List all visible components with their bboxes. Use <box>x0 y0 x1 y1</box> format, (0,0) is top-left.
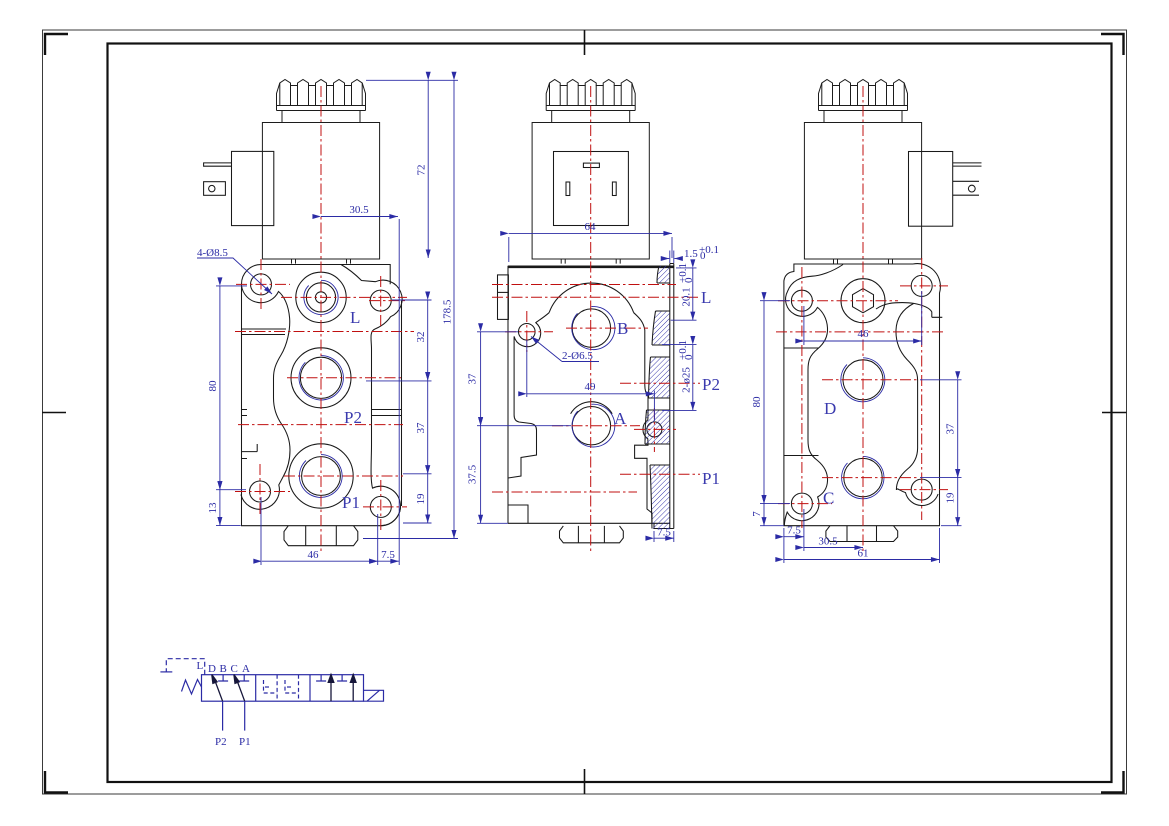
svg-text:30.5: 30.5 <box>818 536 838 548</box>
svg-text:19: 19 <box>945 492 957 504</box>
svg-text:46: 46 <box>308 549 320 561</box>
svg-text:0: 0 <box>683 354 695 360</box>
svg-text:178.5: 178.5 <box>442 299 454 324</box>
svg-text:2-ø25: 2-ø25 <box>681 367 693 393</box>
svg-text:D: D <box>208 663 216 675</box>
svg-text:13: 13 <box>207 502 219 514</box>
svg-text:7: 7 <box>751 511 763 517</box>
svg-text:7.5: 7.5 <box>381 549 395 561</box>
svg-text:7.5: 7.5 <box>787 525 801 537</box>
svg-text:64: 64 <box>585 221 597 233</box>
svg-text:19: 19 <box>415 493 427 505</box>
svg-text:4-Ø8.5: 4-Ø8.5 <box>197 247 228 259</box>
svg-text:0: 0 <box>683 277 695 283</box>
svg-text:0: 0 <box>700 250 706 262</box>
svg-text:37.5: 37.5 <box>467 464 479 484</box>
svg-text:37: 37 <box>415 422 427 434</box>
svg-text:P1: P1 <box>239 736 251 748</box>
svg-text:32: 32 <box>415 332 427 343</box>
svg-text:B: B <box>220 663 227 675</box>
svg-text:B: B <box>617 319 628 338</box>
svg-text:61: 61 <box>858 548 869 560</box>
svg-text:72: 72 <box>416 165 428 176</box>
svg-text:30.5: 30.5 <box>349 204 369 216</box>
svg-text:A: A <box>614 409 627 428</box>
svg-text:80: 80 <box>207 380 219 392</box>
svg-text:46: 46 <box>858 328 870 340</box>
svg-text:37: 37 <box>467 373 479 385</box>
svg-text:L: L <box>197 660 204 672</box>
svg-text:37: 37 <box>945 423 957 435</box>
svg-text:2-Ø6.5: 2-Ø6.5 <box>562 350 593 362</box>
svg-text:C: C <box>231 663 238 675</box>
svg-text:C: C <box>823 489 834 508</box>
svg-text:P2: P2 <box>702 375 720 394</box>
svg-text:P2: P2 <box>344 408 362 427</box>
svg-text:L: L <box>701 288 711 307</box>
svg-text:P1: P1 <box>342 493 360 512</box>
svg-text:P2: P2 <box>215 736 227 748</box>
svg-text:L: L <box>350 308 360 327</box>
svg-text:A: A <box>242 663 250 675</box>
svg-text:80: 80 <box>751 396 763 408</box>
svg-text:7.5: 7.5 <box>657 527 671 539</box>
svg-text:49: 49 <box>585 381 597 393</box>
svg-text:1.5: 1.5 <box>684 248 698 260</box>
svg-text:20.1: 20.1 <box>681 287 693 306</box>
svg-text:P1: P1 <box>702 469 720 488</box>
svg-text:D: D <box>824 399 836 418</box>
